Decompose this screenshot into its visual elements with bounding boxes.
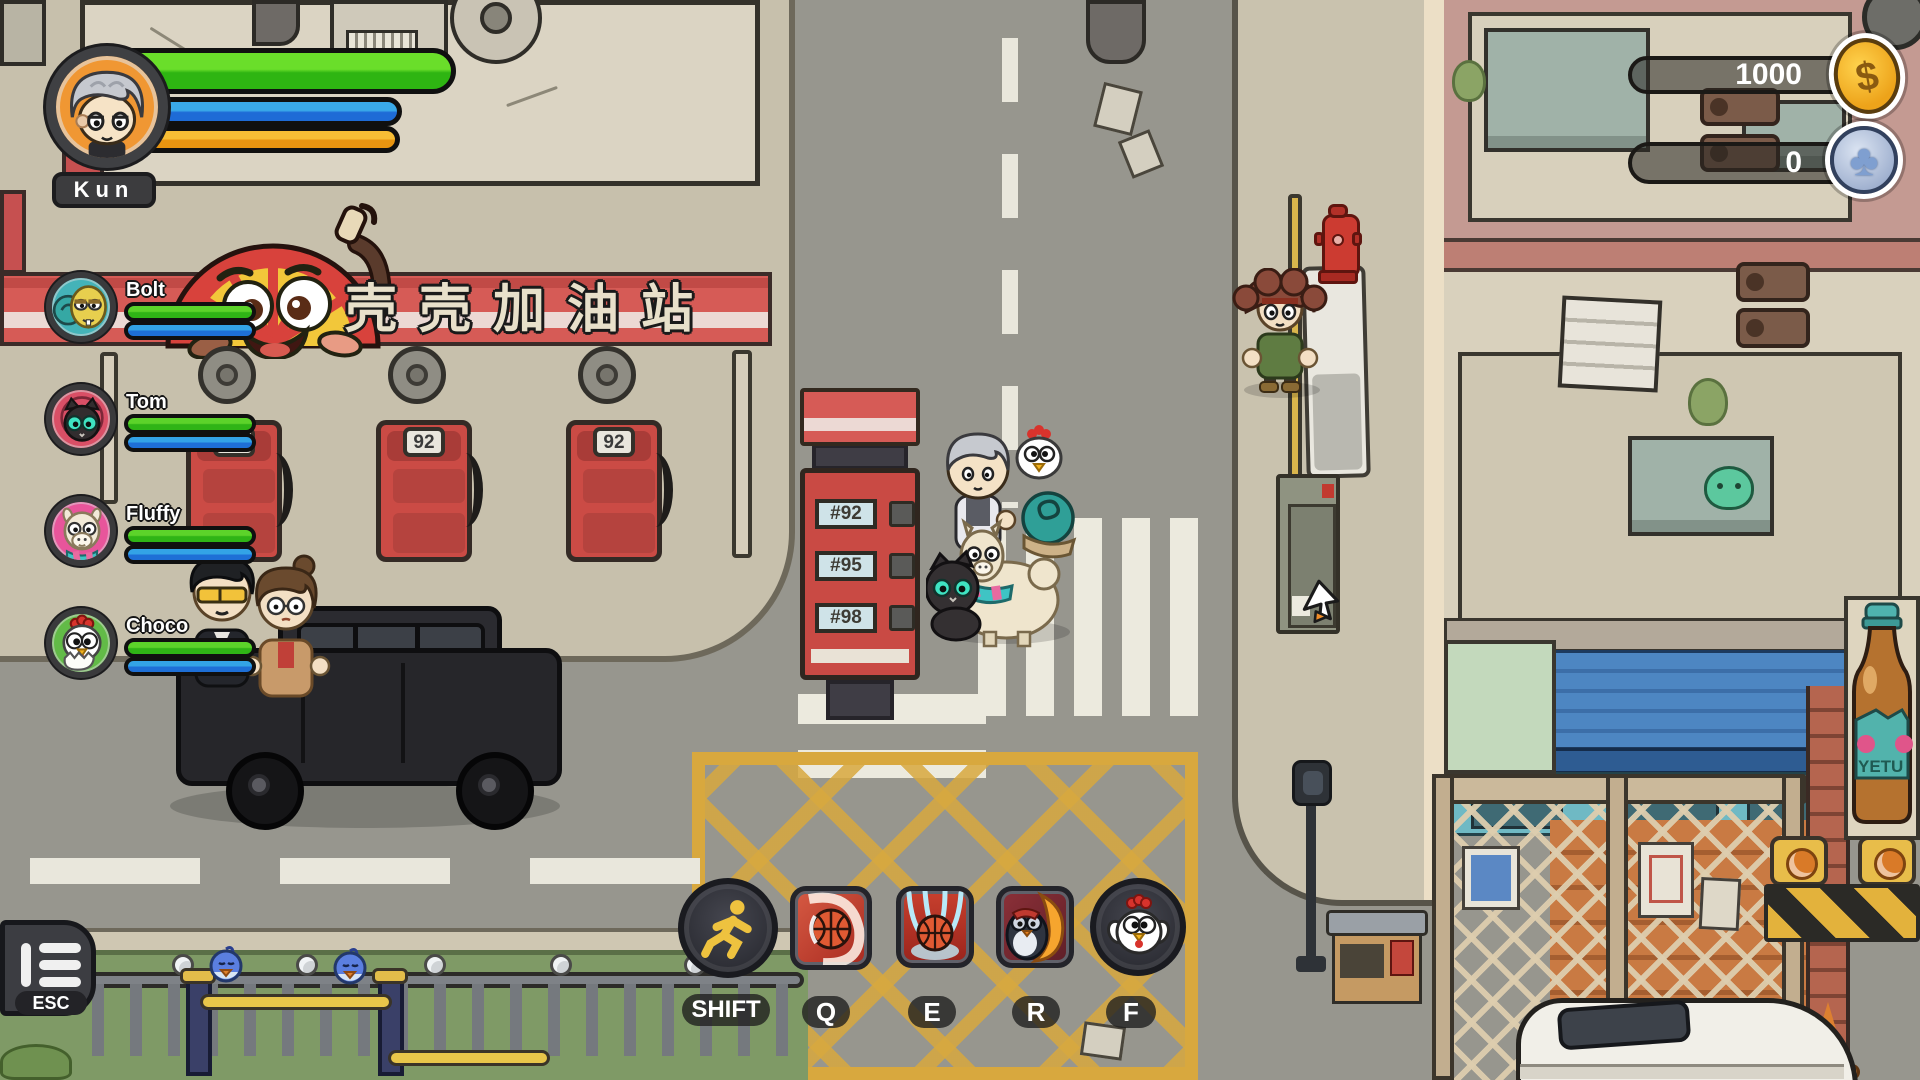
mint-wall-panel bbox=[1444, 640, 1556, 774]
post-cap bbox=[372, 968, 408, 984]
wheel-rim bbox=[478, 774, 500, 796]
bush bbox=[0, 1044, 72, 1080]
menu-icon-line bbox=[39, 977, 81, 987]
moss-patch bbox=[1688, 378, 1728, 426]
price-square bbox=[889, 501, 915, 527]
game-viewport: 壳壳加油站 92 92 92 #92 #95 #98 bbox=[0, 0, 1920, 1080]
player-name-badge: Kun bbox=[52, 172, 156, 208]
monkey-bar bbox=[200, 994, 392, 1010]
key-label-r: R bbox=[1012, 996, 1060, 1028]
fuel-price-tag: #92 bbox=[815, 499, 877, 529]
coin-counter: 1000 bbox=[1628, 56, 1862, 94]
menu-button[interactable]: ESC bbox=[0, 920, 96, 1016]
gas-station-sign-text: 壳壳加油站 bbox=[290, 274, 770, 346]
fuel-price-tag: #98 bbox=[815, 603, 877, 633]
club-glyph: ♣ bbox=[1850, 136, 1879, 185]
building-band bbox=[1444, 238, 1920, 272]
skill-button-q[interactable] bbox=[790, 886, 872, 970]
bolt-mana-bar bbox=[124, 321, 256, 340]
fence-finial bbox=[424, 954, 446, 976]
kiosk-roof bbox=[1326, 910, 1428, 936]
party-avatar-tom[interactable] bbox=[46, 384, 116, 454]
pump-octane-label: 92 bbox=[403, 427, 445, 457]
canopy-column-top bbox=[388, 346, 446, 404]
car-trim bbox=[1520, 1064, 1844, 1079]
token-amount: 0 bbox=[1785, 146, 1802, 180]
choco-portrait bbox=[52, 614, 112, 674]
price-board-body: #92 #95 #98 bbox=[800, 468, 920, 680]
suv-wheel bbox=[456, 752, 534, 830]
pump-hose bbox=[448, 453, 483, 527]
pipe-elbow bbox=[252, 0, 300, 46]
wall-pipe bbox=[1736, 262, 1810, 302]
price-square bbox=[889, 605, 915, 631]
choco-health-bar bbox=[124, 638, 256, 658]
party-name-bolt: Bolt bbox=[126, 279, 165, 302]
club-coin-icon: ♣ bbox=[1830, 126, 1898, 194]
mouse-cursor bbox=[1298, 576, 1344, 626]
blue-bird bbox=[206, 946, 246, 984]
warning-light bbox=[1858, 836, 1916, 886]
scratch-mark bbox=[506, 86, 558, 107]
pipe-stub bbox=[1086, 0, 1146, 64]
white-car bbox=[1516, 980, 1856, 1080]
vent-box bbox=[0, 0, 46, 66]
npc-coat-woman bbox=[238, 554, 334, 704]
party-avatar-fluffy[interactable] bbox=[46, 496, 116, 566]
hydrant-valve bbox=[1332, 234, 1344, 246]
lamp-head bbox=[1292, 760, 1332, 806]
menu-icon-line bbox=[39, 960, 81, 970]
party-avatar-bolt[interactable] bbox=[46, 272, 116, 342]
bottle-brand-text: YETU bbox=[1858, 757, 1903, 776]
key-label-e: E bbox=[908, 996, 956, 1028]
price-board-awning bbox=[800, 388, 920, 446]
esc-key-label: ESC bbox=[15, 991, 87, 1015]
menu-icon-line bbox=[39, 943, 81, 953]
hydrant-nub bbox=[1314, 232, 1324, 246]
canopy-column-top bbox=[578, 346, 636, 404]
bottle-billboard: YETU bbox=[1844, 596, 1920, 840]
skill-button-sprint[interactable] bbox=[678, 878, 778, 978]
gas-pump: 92 bbox=[376, 420, 472, 562]
cabinet-red-tag bbox=[1322, 484, 1334, 498]
basketball-slam-icon bbox=[901, 891, 969, 963]
moss-patch bbox=[1452, 60, 1486, 102]
poster-note bbox=[1699, 877, 1742, 931]
skill-button-e[interactable] bbox=[896, 886, 974, 968]
key-label-q: Q bbox=[802, 996, 850, 1028]
canopy-column-top bbox=[198, 346, 256, 404]
pump-hose bbox=[258, 453, 293, 527]
party-name-fluffy: Fluffy bbox=[126, 503, 180, 526]
paper-debris bbox=[1118, 129, 1165, 179]
kiosk-sign bbox=[1390, 940, 1414, 976]
price-square bbox=[889, 553, 915, 579]
pump-hose bbox=[638, 453, 673, 527]
wall-pipe bbox=[1736, 308, 1810, 348]
suv-wheel bbox=[226, 752, 304, 830]
fence-finial bbox=[550, 954, 572, 976]
player-portrait bbox=[56, 56, 158, 158]
poster-blue bbox=[1462, 846, 1520, 910]
monkey-bar bbox=[388, 1050, 550, 1066]
penguin-flame-icon bbox=[1001, 891, 1069, 963]
poster-white bbox=[1638, 842, 1694, 918]
pump-octane-label: 92 bbox=[593, 427, 635, 457]
menu-icon-bar bbox=[21, 943, 31, 987]
basketball-shot-icon bbox=[795, 891, 867, 965]
bolt-health-bar bbox=[124, 302, 256, 322]
chicken-icon bbox=[1105, 894, 1171, 960]
skill-button-r[interactable] bbox=[996, 886, 1074, 968]
door-line bbox=[401, 663, 405, 763]
coin-amount: 1000 bbox=[1735, 60, 1802, 90]
fuel-price-tag: #95 bbox=[815, 551, 877, 581]
fluffy-mana-bar bbox=[124, 545, 256, 564]
canopy-pole bbox=[732, 350, 752, 558]
price-board-stripe bbox=[804, 418, 916, 431]
ac-duct bbox=[1558, 295, 1663, 392]
hydrant-cap bbox=[1328, 204, 1348, 218]
player-avatar[interactable] bbox=[46, 46, 168, 168]
road-dashes-left bbox=[30, 858, 774, 884]
npc-curly-hair bbox=[1226, 268, 1334, 396]
choco-mana-bar bbox=[124, 657, 256, 676]
poster-frame bbox=[1649, 855, 1683, 903]
lamp-base bbox=[1296, 956, 1326, 972]
warning-light bbox=[1770, 836, 1828, 886]
key-label-shift: SHIFT bbox=[682, 994, 770, 1026]
party-name-tom: Tom bbox=[126, 391, 167, 414]
poster-art bbox=[1471, 855, 1511, 901]
price-board-stripe bbox=[811, 649, 909, 663]
fuel-price-board: #92 #95 #98 bbox=[800, 388, 920, 720]
bolt-portrait bbox=[52, 278, 112, 338]
fan-hub bbox=[480, 2, 512, 34]
tom-portrait bbox=[52, 390, 112, 450]
fence-finial bbox=[296, 954, 318, 976]
small-kiosk bbox=[1326, 910, 1428, 1008]
kiosk-window bbox=[1340, 944, 1384, 978]
dollar-glyph: $ bbox=[1852, 53, 1882, 100]
tom-health-bar bbox=[124, 414, 256, 434]
party-avatar-choco[interactable] bbox=[46, 608, 116, 678]
blue-bird bbox=[330, 948, 370, 986]
price-board-base bbox=[826, 680, 894, 720]
sprint-icon bbox=[697, 897, 759, 959]
concrete-slab bbox=[1484, 28, 1650, 152]
green-slime-pet bbox=[1704, 466, 1754, 510]
player-group bbox=[926, 416, 1086, 651]
yetu-bottle: YETU bbox=[1848, 600, 1916, 836]
fluffy-portrait bbox=[52, 502, 112, 562]
token-counter: 0 bbox=[1628, 142, 1862, 184]
key-label-f: F bbox=[1106, 996, 1156, 1028]
fence-post bbox=[1432, 774, 1454, 1080]
fluffy-health-bar bbox=[124, 526, 256, 546]
party-name-choco: Choco bbox=[126, 615, 188, 638]
red-wall-edge bbox=[0, 190, 26, 274]
gas-pump: 92 bbox=[566, 420, 662, 562]
striped-barrier bbox=[1764, 884, 1920, 942]
wheel-rim bbox=[248, 774, 270, 796]
skill-button-chicken[interactable] bbox=[1090, 878, 1186, 976]
hydrant-nub bbox=[1352, 232, 1362, 246]
price-board-neck bbox=[812, 444, 908, 470]
lamp-pole bbox=[1306, 802, 1316, 962]
paper-debris bbox=[1093, 82, 1143, 136]
tom-mana-bar bbox=[124, 433, 256, 452]
